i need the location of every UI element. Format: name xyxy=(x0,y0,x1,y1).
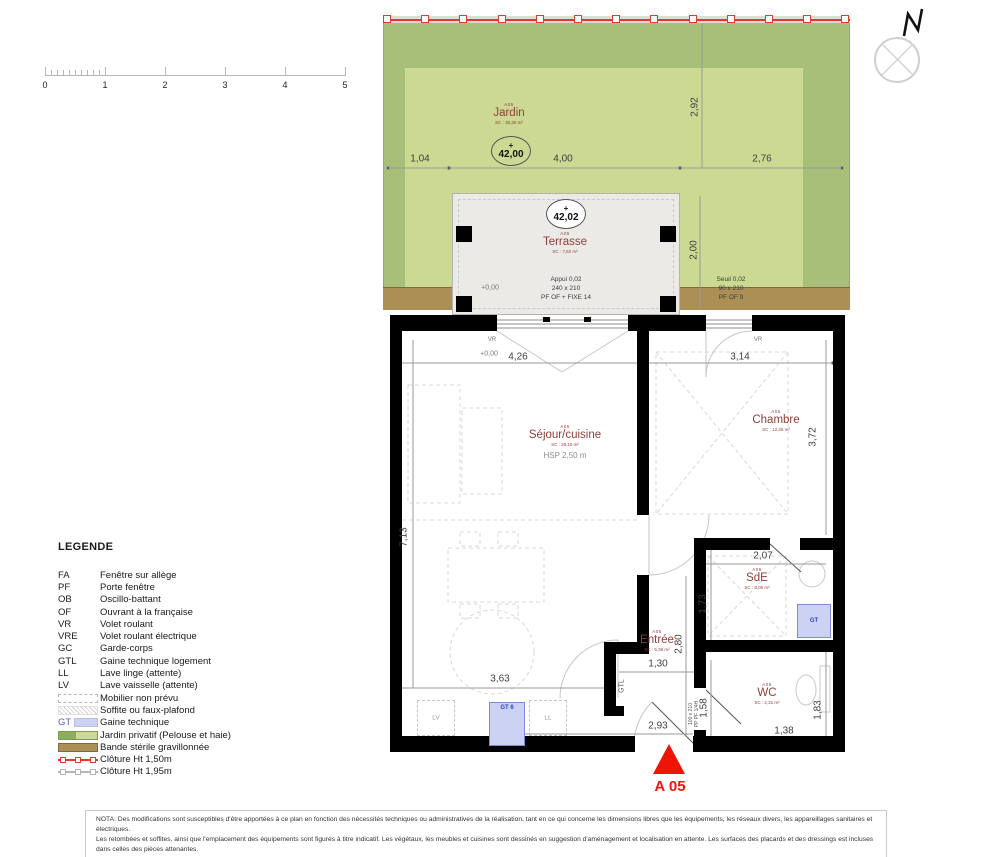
legend-label: Lave linge (attente) xyxy=(100,668,181,679)
legend-label: Soffite ou faux-plafond xyxy=(100,705,195,716)
terrace-pillar xyxy=(456,296,472,312)
gt-label: GT xyxy=(810,618,818,624)
dishwasher-box: LV xyxy=(417,700,455,736)
legend-row: GCGarde-corps xyxy=(58,643,328,655)
legend-row: FAFenêtre sur allège xyxy=(58,569,328,581)
legend-abbr: FA xyxy=(58,570,100,581)
ll-label: LL xyxy=(544,715,551,722)
legend-swatch-garden xyxy=(58,730,100,741)
legend-row: PFPorte fenêtre xyxy=(58,581,328,593)
wall xyxy=(833,315,845,752)
legend-label: Lave vaisselle (attente) xyxy=(100,680,198,691)
terrace-level-marker: + 42,02 xyxy=(546,199,586,229)
legend-row: VREVolet roulant électrique xyxy=(58,630,328,642)
room-label-sejour: A05 Séjour/cuisine SC : 28,16 m² HSP 2,5… xyxy=(529,424,601,460)
fence-post-icon xyxy=(383,15,391,23)
nota-line2: Les retombées et soffites, ainsi que l'e… xyxy=(96,835,876,855)
apartment-marker-label: A 05 xyxy=(654,778,685,795)
room-area: SC : 7,82 m² xyxy=(543,249,587,254)
room-name: Chambre xyxy=(752,414,799,427)
room-area: SC : 28,16 m² xyxy=(529,442,601,447)
scale-tick-minor xyxy=(87,70,88,76)
level-value: 42,02 xyxy=(553,212,578,223)
scale-tick-minor xyxy=(51,70,52,76)
wall xyxy=(752,315,845,331)
room-label-chambre: A05 Chambre SC : 12,26 m² xyxy=(752,409,799,433)
fence-post-icon xyxy=(650,15,658,23)
dim-sde-top: 2,07 xyxy=(753,551,772,562)
room-label-entree: A05 Entrée SC : 5,36 m² xyxy=(640,629,674,653)
legend-abbr-list: FAFenêtre sur allègePFPorte fenêtreOBOsc… xyxy=(58,569,328,692)
lv-label: LV xyxy=(432,715,439,722)
legend-label: Clôture Ht 1,50m xyxy=(100,754,172,765)
terrace-pillar xyxy=(456,226,472,242)
wall xyxy=(800,538,845,550)
room-area: SC : 3,05 m² xyxy=(744,585,769,590)
legend-abbr: VRE xyxy=(58,631,100,642)
dim-chambre-right: 3,72 xyxy=(808,427,819,446)
dim-entree-w: 1,30 xyxy=(648,659,667,670)
scale-bar: 012345 xyxy=(45,60,345,92)
fence-squares xyxy=(383,14,850,28)
room-area: SC : 30,30 m² xyxy=(493,120,524,125)
room-name: WC xyxy=(754,687,779,700)
legend-row: Mobilier non prévu xyxy=(58,692,328,704)
scale-tick xyxy=(285,67,286,76)
fence-post-icon xyxy=(841,15,849,23)
scale-label: 5 xyxy=(342,80,347,90)
gt6-duct-box: GT 6 xyxy=(489,702,525,746)
dim-chambre-top: 3,14 xyxy=(730,352,749,363)
note-line: Appui 0,02 xyxy=(541,275,591,284)
scale-tick-minor xyxy=(93,70,94,76)
window-mullion xyxy=(584,317,591,322)
fence-post-icon xyxy=(612,15,620,23)
scale-tick xyxy=(165,67,166,76)
dim-sejour-bottom: 3,63 xyxy=(490,674,509,685)
dim-sde-left: 1,73 xyxy=(698,594,709,613)
dim-garden-right: 2,76 xyxy=(752,154,771,165)
legend-label: Ouvrant à la française xyxy=(100,607,193,618)
room-name: Entrée xyxy=(640,634,674,647)
dim-wc-left: 1,58 xyxy=(699,698,710,717)
legend-swatch-fence-red xyxy=(58,754,100,765)
vr-label-right: VR xyxy=(754,337,762,343)
scale-tick-minor xyxy=(63,70,64,76)
legend-row: OBOscillo-battant xyxy=(58,594,328,606)
legend-label: Clôture Ht 1,95m xyxy=(100,766,172,777)
dim-wc-right: 1,83 xyxy=(813,700,824,719)
note-line: 90 x 210 xyxy=(717,284,746,293)
wall xyxy=(390,315,497,331)
north-arrow-icon xyxy=(904,9,922,36)
nota-box: NOTA: Des modifications sont susceptible… xyxy=(85,810,887,857)
legend-swatch-dashed-box xyxy=(58,693,100,704)
dim-terrace-vert: 2,00 xyxy=(689,240,700,259)
terrace-pillar xyxy=(660,296,676,312)
note-line: Seuil 0,02 xyxy=(717,275,746,284)
legend-label: Jardin privatif (Pelouse et haie) xyxy=(100,730,231,741)
nota-line1: NOTA: Des modifications sont susceptible… xyxy=(96,815,876,835)
note-line: 240 x 210 xyxy=(541,284,591,293)
terrace-pillar xyxy=(660,226,676,242)
room-area: SC : 2,31 m² xyxy=(754,700,779,705)
legend-swatch-gravel xyxy=(58,742,100,753)
fence-post-icon xyxy=(498,15,506,23)
dim-garden-vert: 2,92 xyxy=(690,97,701,116)
fence-post-icon xyxy=(574,15,582,23)
note-line: PF OF 9 xyxy=(717,293,746,302)
scale-label: 1 xyxy=(102,80,107,90)
garden-level-marker: + 42,00 xyxy=(491,136,531,166)
legend: LEGENDE FAFenêtre sur allègePFPorte fenê… xyxy=(58,541,328,778)
compass xyxy=(862,6,932,88)
wall xyxy=(637,331,649,515)
entry-door-type: PP PF 1/4H xyxy=(694,701,700,727)
legend-swatch-hatch xyxy=(58,705,100,716)
fence-post-icon xyxy=(459,15,467,23)
scale-label: 2 xyxy=(162,80,167,90)
room-hsp: HSP 2,50 m xyxy=(529,451,601,460)
dim-garden-left: 1,04 xyxy=(410,154,429,165)
wall xyxy=(604,706,624,716)
room-label-jardin: A05 Jardin SC : 30,30 m² xyxy=(493,102,524,126)
wall xyxy=(693,736,845,752)
legend-swatch-fence-gray xyxy=(58,766,100,777)
legend-label: Mobilier non prévu xyxy=(100,693,178,704)
level-value: 42,00 xyxy=(498,149,523,160)
legend-abbr: PF xyxy=(58,582,100,593)
scale-tick xyxy=(105,67,106,76)
legend-abbr: LV xyxy=(58,680,100,691)
legend-row: Jardin privatif (Pelouse et haie) xyxy=(58,729,328,741)
legend-abbr: OB xyxy=(58,594,100,605)
scale-tick-minor xyxy=(99,70,100,76)
legend-abbr: LL xyxy=(58,668,100,679)
fence-post-icon xyxy=(803,15,811,23)
legend-swatch-gt: GT xyxy=(58,717,100,728)
legend-row: Clôture Ht 1,50m xyxy=(58,753,328,765)
scale-tick-minor xyxy=(57,70,58,76)
room-name: Terrasse xyxy=(543,236,587,249)
dim-wc-bottom: 1,38 xyxy=(774,726,793,737)
legend-swatch-list: Mobilier non prévuSoffite ou faux-plafon… xyxy=(58,692,328,778)
legend-label: Volet roulant xyxy=(100,619,153,630)
room-name: Jardin xyxy=(493,107,524,120)
scale-tick-minor xyxy=(81,70,82,76)
room-label-sde: A05 SdE SC : 3,05 m² xyxy=(744,567,769,591)
wall xyxy=(694,640,845,652)
dim-sejour-left: 7,13 xyxy=(399,527,410,546)
window-glazing xyxy=(497,320,752,328)
room-label-wc: A05 WC SC : 2,31 m² xyxy=(754,682,779,706)
entry-door-note: 100 x 210 PP PF 1/4H xyxy=(688,701,700,727)
wall xyxy=(694,730,706,752)
fence-post-icon xyxy=(536,15,544,23)
appui-note: Appui 0,02240 x 210PF OF + FIXE 14 xyxy=(541,275,591,302)
scale-bar-ticks: 012345 xyxy=(45,60,345,92)
legend-row: VRVolet roulant xyxy=(58,618,328,630)
legend-abbr: GTL xyxy=(58,656,100,667)
dim-garden-mid: 4,00 xyxy=(553,154,572,165)
legend-row: GTGaine technique xyxy=(58,717,328,729)
scale-tick-minor xyxy=(75,70,76,76)
scale-tick xyxy=(345,67,346,76)
legend-label: Oscillo-battant xyxy=(100,594,161,605)
seuil-note: Seuil 0,0290 x 210PF OF 9 xyxy=(717,275,746,302)
room-name: Séjour/cuisine xyxy=(529,429,601,442)
fence-post-icon xyxy=(421,15,429,23)
legend-label: Bande stérile gravillonnée xyxy=(100,742,209,753)
legend-title: LEGENDE xyxy=(58,541,328,553)
legend-row: Soffite ou faux-plafond xyxy=(58,704,328,716)
legend-label: Fenêtre sur allège xyxy=(100,570,177,581)
fence-post-icon xyxy=(689,15,697,23)
room-area: SC : 12,26 m² xyxy=(752,427,799,432)
dim-entree-h: 2,80 xyxy=(674,634,685,653)
dim-sejour-top: 4,26 xyxy=(508,352,527,363)
legend-row: GTLGaine technique logement xyxy=(58,655,328,667)
legend-label: Gaine technique logement xyxy=(100,656,211,667)
fence-post-icon xyxy=(727,15,735,23)
legend-gt-abbr: GT xyxy=(58,717,74,728)
wall xyxy=(604,654,616,712)
fence-post-icon xyxy=(765,15,773,23)
note-line: PF OF + FIXE 14 xyxy=(541,293,591,302)
apartment-marker-icon xyxy=(653,744,685,774)
window-mullion xyxy=(543,317,550,322)
legend-row: LLLave linge (attente) xyxy=(58,667,328,679)
legend-row: Clôture Ht 1,95m xyxy=(58,766,328,778)
scale-label: 3 xyxy=(222,80,227,90)
legend-label: Volet roulant électrique xyxy=(100,631,197,642)
scale-label: 0 xyxy=(42,80,47,90)
plan-level-zero: +0,00 xyxy=(480,351,498,358)
dim-entry-w: 2,93 xyxy=(648,721,667,732)
legend-row: OFOuvrant à la française xyxy=(58,606,328,618)
wall xyxy=(628,315,706,331)
gt6-label: GT 6 xyxy=(500,705,513,711)
room-area: SC : 5,36 m² xyxy=(640,647,674,652)
legend-abbr: GC xyxy=(58,643,100,654)
legend-row: LVLave vaisselle (attente) xyxy=(58,680,328,692)
legend-label: Gaine technique xyxy=(100,717,169,728)
fence-cloture xyxy=(383,14,850,28)
room-label-terrasse: A05 Terrasse SC : 7,82 m² xyxy=(543,231,587,255)
gt-duct-box: GT xyxy=(797,604,831,638)
legend-abbr: OF xyxy=(58,607,100,618)
scale-tick xyxy=(45,67,46,76)
terrace-level-zero: +0,00 xyxy=(481,285,499,292)
legend-row: Bande stérile gravillonnée xyxy=(58,741,328,753)
floor-plan-sheet: 012345 xyxy=(0,0,1000,857)
scale-tick-minor xyxy=(69,70,70,76)
legend-abbr: VR xyxy=(58,619,100,630)
room-name: SdE xyxy=(744,572,769,585)
scale-label: 4 xyxy=(282,80,287,90)
legend-label: Garde-corps xyxy=(100,643,153,654)
legend-label: Porte fenêtre xyxy=(100,582,155,593)
scale-tick xyxy=(225,67,226,76)
gtl-label: GTL xyxy=(619,679,626,693)
washer-box: LL xyxy=(529,700,567,736)
vr-label-left: VR xyxy=(488,337,496,343)
